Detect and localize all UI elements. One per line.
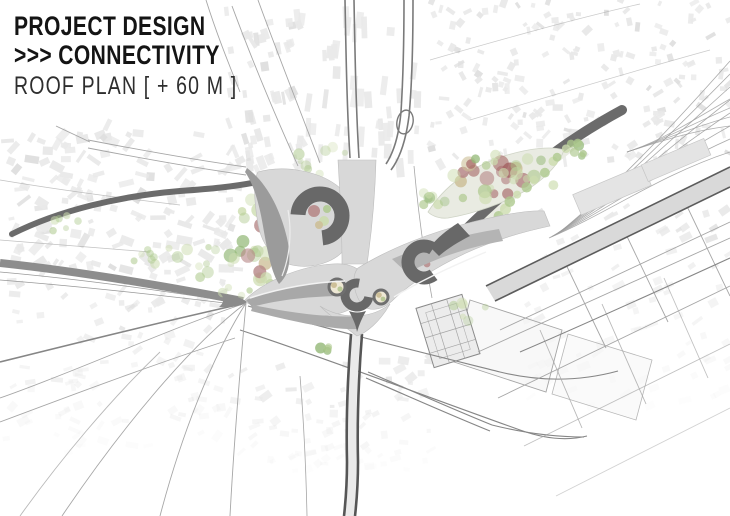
building-footprint [654,23,662,30]
building-footprint [216,403,226,412]
building-footprint [1,138,14,143]
building-footprint [678,396,692,405]
tree [447,169,460,182]
tree [511,160,522,171]
building-footprint [219,279,226,285]
building-footprint [556,237,565,245]
building-footprint [72,400,84,411]
building-footprint [679,75,685,80]
building-footprint [322,89,329,109]
building-footprint [607,156,615,163]
building-footprint [97,436,109,446]
building-footprint [371,148,377,158]
building-footprint [322,50,327,61]
building-footprint [132,129,144,137]
building-footprint [111,416,123,426]
building-footprint [669,40,676,47]
building-footprint [137,332,143,339]
building-footprint [121,334,132,341]
building-footprint [381,430,388,439]
building-footprint [543,11,551,19]
building-footprint [493,5,499,14]
building-footprint [178,412,186,417]
building-footprint [358,422,366,430]
building-footprint [280,430,290,437]
building-footprint [452,152,460,160]
building-footprint [403,467,410,472]
building-footprint [643,105,650,112]
building-footprint [122,419,129,423]
roof-plan-page: PROJECT DESIGN >>> CONNECTIVITY ROOF PLA… [0,0,730,516]
building-footprint [132,345,143,355]
tree [172,251,184,263]
building-footprint [716,57,723,64]
building-footprint [542,129,551,139]
building-footprint [97,401,103,407]
building-footprint [673,97,680,104]
tree [148,256,156,264]
tree [540,168,550,178]
street-line [368,372,492,425]
building-footprint [105,293,116,301]
building-footprint [378,131,385,146]
building-footprint [408,150,414,164]
building-footprint [224,7,229,17]
building-footprint [541,51,549,58]
building-footprint [397,397,409,402]
building-footprint [45,241,54,250]
building-footprint [143,443,153,448]
building-footprint [531,3,536,8]
building-footprint [89,302,97,310]
tree [342,150,348,156]
tree [463,316,473,326]
building-footprint [649,296,657,303]
building-footprint [725,16,730,23]
building-footprint [163,163,173,173]
tree [239,213,250,224]
building-footprint [330,405,335,408]
building-footprint [515,2,521,9]
tree [513,191,521,199]
tree [479,191,492,204]
building-footprint [604,335,615,344]
building-footprint [241,133,249,145]
building-footprint [190,153,203,163]
building-footprint [695,4,705,14]
building-footprint [122,137,135,152]
tree [570,148,579,157]
building-footprint [455,17,465,28]
building-footprint [625,76,634,85]
building-footprint [364,91,373,108]
building-footprint [285,387,296,391]
building-footprint [183,339,195,349]
building-footprint [164,270,171,275]
building-footprint [526,27,530,35]
building-footprint [45,282,54,290]
building-footprint [333,444,343,451]
building-footprint [562,47,570,55]
building-footprint [69,416,81,424]
building-footprint [458,71,466,81]
building-footprint [526,393,536,401]
building-footprint [549,34,555,40]
building-footprint [454,105,464,114]
building-footprint [128,341,134,346]
building-footprint [497,71,508,77]
building-footprint [463,8,472,15]
tree [131,257,138,264]
building-footprint [572,96,582,103]
building-footprint [524,301,531,308]
building-footprint [250,135,257,145]
building-footprint [414,125,419,134]
building-footprint [68,379,78,384]
building-footprint [292,468,298,473]
building-footprint [119,300,125,306]
tree [549,180,559,190]
tree [458,300,468,310]
building-footprint [245,110,254,123]
building-footprint [427,429,431,433]
building-footprint [248,432,258,441]
building-footprint [581,25,593,36]
building-footprint [635,22,641,32]
building-footprint [94,317,104,326]
street-line [478,238,730,352]
tree [202,266,214,278]
building-footprint [702,209,710,217]
building-footprint [399,440,408,445]
building-footprint [563,78,571,84]
building-footprint [653,89,664,98]
building-footprint [70,229,82,239]
building-footprint [430,122,435,128]
building-footprint [263,115,271,122]
building-footprint [65,147,76,154]
building-footprint [508,113,514,120]
building-footprint [168,362,175,369]
tree [536,156,546,166]
building-footprint [679,231,693,243]
building-footprint [613,243,622,250]
tree [471,154,480,163]
building-footprint [16,320,23,324]
building-footprint [88,219,94,224]
building-footprint [76,150,87,164]
building-footprint [536,139,543,148]
tree [480,171,495,186]
building-footprint [106,228,117,238]
building-footprint [435,121,442,125]
building-footprint [214,227,221,233]
building-footprint [202,211,215,225]
tree [74,217,82,225]
building-footprint [7,141,20,155]
building-footprint [720,128,726,139]
building-footprint [125,131,132,138]
tree [530,176,539,185]
building-footprint [625,52,635,60]
building-footprint [438,5,443,14]
tree [522,182,532,192]
building-footprint [662,365,671,373]
building-footprint [449,21,457,30]
tree [324,345,332,353]
building-footprint [611,264,620,272]
building-footprint [14,186,27,191]
building-footprint [9,291,21,298]
tree [246,287,252,293]
building-footprint [485,87,492,93]
building-footprint [510,48,519,57]
building-footprint [386,27,394,36]
building-footprint [87,228,95,237]
tree [237,235,250,248]
building-footprint [608,80,616,87]
building-footprint [199,413,209,420]
building-footprint [264,136,271,147]
tree [195,262,203,270]
building-footprint [331,44,338,58]
building-footprint [75,251,87,263]
building-footprint [626,17,633,26]
building-footprint [459,126,467,135]
building-footprint [17,194,32,206]
building-footprint [408,382,413,386]
building-footprint [227,46,234,54]
tree [553,153,562,162]
building-footprint [242,90,247,98]
building-footprint [186,197,197,206]
building-footprint [303,464,313,474]
building-footprint [677,350,687,359]
building-footprint [25,379,36,385]
building-footprint [422,457,428,463]
building-footprint [441,65,448,72]
building-footprint [316,419,323,424]
building-footprint [648,383,660,392]
building-footprint [77,178,84,187]
tree [63,212,70,219]
building-footprint [649,52,656,57]
roof-plan-map [0,0,730,516]
street-line [300,376,307,516]
building-footprint [28,239,44,256]
building-footprint [335,124,341,137]
building-footprint [331,420,340,428]
street-line [20,352,160,516]
building-footprint [304,93,312,112]
building-footprint [463,98,472,108]
building-footprint [700,332,707,340]
building-footprint [267,456,274,463]
building-footprint [371,410,380,418]
street-line [664,278,708,378]
building-footprint [499,0,508,9]
building-footprint [704,234,718,244]
building-footprint [237,447,246,456]
tree [499,168,509,178]
building-footprint [617,0,625,4]
building-footprint [386,106,392,118]
building-footprint [610,92,618,100]
building-footprint [465,37,471,44]
building-footprint [365,409,372,415]
building-footprint [24,155,39,165]
building-footprint [601,81,609,90]
building-footprint [716,284,724,292]
building-footprint [213,385,223,393]
building-footprint [167,405,178,415]
tree [562,144,571,153]
building-footprint [148,307,153,313]
tree [55,215,62,222]
building-footprint [268,51,275,58]
building-footprint [498,81,504,88]
building-footprint [39,157,51,167]
building-footprint [87,154,102,166]
tree [509,175,519,185]
building-footprint [597,43,605,52]
building-footprint [474,76,483,84]
building-footprint [225,117,232,129]
building-footprint [230,397,241,405]
building-footprint [436,40,443,47]
building-footprint [234,75,239,86]
building-footprint [361,17,367,39]
building-footprint [19,365,30,370]
building-footprint [326,427,333,434]
building-footprint [226,197,233,203]
building-footprint [394,449,402,455]
building-footprint [296,135,304,150]
building-footprint [380,461,387,467]
tree [440,197,450,207]
building-footprint [62,198,69,204]
building-footprint [377,453,383,459]
building-footprint [228,72,235,85]
tree [459,194,467,202]
building-footprint [197,430,205,437]
building-footprint [492,83,498,92]
building-footprint [255,384,266,392]
building-footprint [281,92,286,105]
building-footprint [153,242,162,249]
street-line [556,408,730,496]
building-footprint [291,429,298,434]
building-footprint [183,365,195,371]
building-footprint [692,316,704,326]
building-footprint [545,0,552,6]
building-footprint [203,363,213,373]
building-footprint [6,156,16,166]
street-line [366,378,490,431]
building-footprint [426,446,436,454]
building-footprint [305,398,312,405]
tree [138,251,145,258]
building-footprint [430,11,437,19]
building-footprint [518,120,523,125]
building-footprint [651,46,657,52]
building-footprint [478,87,484,98]
building-footprint [515,136,523,144]
street-line [0,303,246,362]
building-footprint [358,126,365,147]
building-footprint [3,436,11,441]
street-line [230,303,246,516]
building-footprint [260,61,269,71]
building-footprint [553,274,561,279]
building-footprint [657,0,662,6]
building-footprint [482,8,489,16]
building-footprint [446,7,456,16]
building-footprint [275,362,286,371]
building-footprint [227,87,236,98]
building-footprint [209,302,222,308]
building-footprint [150,215,166,220]
building-footprint [705,2,711,9]
tree [241,248,255,262]
building-footprint [653,276,664,286]
building-footprint [491,76,498,83]
track-line [627,108,730,152]
building-footprint [564,114,571,123]
building-footprint [100,360,109,364]
building-footprint [193,131,205,138]
building-footprint [103,118,113,131]
building-footprint [196,351,204,356]
building-footprint [173,352,182,362]
building-footprint [576,12,581,16]
tree [327,142,338,153]
building-footprint [536,120,546,127]
parcel-outlines [416,294,652,420]
building-footprint [691,74,696,80]
building-footprint [53,432,59,438]
building-footprint [439,96,450,101]
tree [522,153,533,164]
tree [426,192,433,199]
building-footprint [333,66,341,79]
building-footprint [446,110,455,119]
tree [293,148,304,159]
building-footprint [586,110,595,118]
building-footprint [428,0,437,6]
building-footprint [176,276,186,283]
building-footprint [644,401,656,411]
tree [166,245,173,252]
building-footprint [135,171,149,178]
building-footprint [477,49,485,55]
building-footprint [523,131,532,139]
building-footprint [690,371,698,379]
building-footprint [645,321,658,329]
tree [505,196,516,207]
building-footprint [561,268,574,277]
building-footprint [96,420,105,431]
building-footprint [482,117,488,126]
building-footprint [689,0,699,7]
building-footprint [305,413,312,421]
building-footprint [9,383,17,389]
building-footprint [8,217,14,221]
building-footprint [723,354,730,365]
building-footprint [228,373,235,379]
building-footprint [68,426,81,435]
building-footprint [188,397,195,403]
